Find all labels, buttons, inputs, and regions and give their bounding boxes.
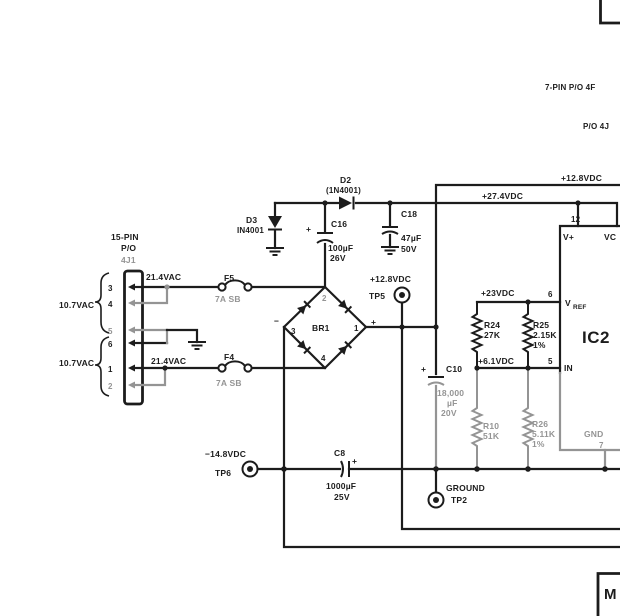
c8-name: C8: [334, 448, 345, 458]
winding-bottom-label: 10.7VAC: [59, 358, 94, 368]
d3-name: D3: [246, 215, 257, 225]
ic2-vplus: V+: [563, 232, 574, 242]
label-23vdc: +23VDC: [481, 288, 515, 298]
br1-name: BR1: [312, 323, 330, 333]
tp6-name: TP6: [215, 468, 231, 478]
r24-name: R24: [484, 320, 500, 330]
wire-pin2: [142, 368, 165, 385]
c8-voltage: 25V: [334, 492, 350, 502]
winding-brace-bottom: [95, 337, 109, 396]
c16-value: 100µF: [328, 243, 353, 253]
f5-rating: 7A SB: [215, 294, 241, 304]
c18-voltage: 50V: [401, 244, 417, 254]
tp6-voltage: −14.8VDC: [205, 449, 246, 459]
label-12v8-bus: +12.8VDC: [561, 173, 602, 183]
pin-label-5: 5: [108, 327, 113, 336]
c18-value: 47µF: [401, 233, 421, 243]
c18-name: C18: [401, 209, 417, 219]
ic2-pin7: 7: [599, 441, 604, 450]
d2-part: (1N4001): [326, 186, 361, 195]
wire-pin4: [142, 287, 167, 303]
r25-name: R25: [533, 320, 549, 330]
tp5-dot: [399, 292, 405, 298]
c10-plus: +: [421, 364, 426, 374]
fuse-f4-icon: [218, 361, 251, 371]
f5-name: F5: [224, 273, 234, 283]
vac-top-label: 21.4VAC: [146, 272, 181, 282]
tp6-dot: [247, 466, 253, 472]
label-27v4-bus: +27.4VDC: [482, 191, 523, 201]
br1-pin4: 4: [321, 354, 326, 363]
label-6v1: +6.1VDC: [478, 356, 514, 366]
br1-pin3: 3: [291, 327, 296, 336]
f4-name: F4: [224, 352, 234, 362]
r10-value: 51K: [483, 431, 500, 441]
r25-value: 2.15K: [533, 330, 557, 340]
r24-value: 27K: [484, 330, 501, 340]
ic2-in: IN: [564, 363, 573, 373]
r10-name: R10: [483, 421, 499, 431]
c10-value: 18,000: [437, 388, 464, 398]
vac-bottom-label: 21.4VAC: [151, 356, 186, 366]
ic2-pin12: 12: [571, 215, 581, 224]
c10-name: C10: [446, 364, 462, 374]
pin-label-6: 6: [108, 340, 113, 349]
pin-label-4: 4: [108, 300, 113, 309]
c10-plate-bottom: [428, 383, 444, 386]
module-label: M: [604, 586, 617, 603]
junction-pin4: [164, 284, 169, 289]
tp5-name: TP5: [369, 291, 385, 301]
r26-tol: 1%: [532, 439, 545, 449]
ic2-vref-sub: REF: [573, 304, 587, 311]
ic2-pin6: 6: [548, 290, 553, 299]
c10-unit: µF: [447, 398, 458, 408]
d2-name: D2: [340, 175, 351, 185]
wire-to-ground: [167, 330, 197, 342]
br1-minus: −: [274, 316, 279, 326]
r25-tol: 1%: [533, 340, 546, 350]
br1-pin1: 1: [354, 324, 359, 333]
ic2-vcc: VC: [604, 232, 616, 242]
winding-brace-top: [95, 273, 109, 333]
connector-pin-arrows: [128, 284, 142, 389]
c16-plus: +: [306, 224, 311, 234]
c8-value: 1000µF: [326, 481, 356, 491]
winding-top-label: 10.7VAC: [59, 300, 94, 310]
c16-voltage: 26V: [330, 253, 346, 263]
r25-resistor: [524, 302, 533, 368]
c8-plate-left: [341, 461, 343, 477]
r10-resistor: [473, 368, 482, 469]
pin-label-1: 1: [108, 365, 113, 374]
br1-pin2: 2: [322, 294, 327, 303]
d2-diode-icon: [339, 197, 352, 210]
tp2-dot: [433, 497, 439, 503]
connector-title2: P/O: [121, 243, 136, 253]
tp2-ground-label: GROUND: [446, 483, 485, 493]
junction-pin2: [162, 365, 167, 370]
tp2-name: TP2: [451, 495, 467, 505]
d3-diode-icon: [268, 216, 282, 228]
r26-name: R26: [532, 419, 548, 429]
top-right-box-corner: [601, 0, 620, 23]
caption-7pin: 7-PIN P/O 4F: [545, 83, 595, 92]
pin-label-2: 2: [108, 382, 113, 391]
d3-part: IN4001: [237, 226, 264, 235]
tp5-voltage: +12.8VDC: [370, 274, 411, 284]
br1-plus: +: [371, 317, 376, 327]
pin-label-3: 3: [108, 284, 113, 293]
ic2-name: IC2: [582, 328, 610, 347]
c18-plate-bottom: [382, 232, 398, 235]
connector-title1: 15-PIN: [111, 232, 139, 242]
connector-title3: 4J1: [121, 255, 136, 265]
c8-plus: +: [352, 456, 357, 466]
caption-po4j: P/O 4J: [583, 122, 609, 131]
ic2-pin5: 5: [548, 357, 553, 366]
f4-rating: 7A SB: [216, 378, 242, 388]
ic2-gnd: GND: [584, 429, 604, 439]
schematic-page: 7-PIN P/O 4F P/O 4J +12.8VDC +27.4VDC D2…: [0, 0, 620, 616]
ic2-vref: V: [565, 298, 571, 308]
c10-voltage: 20V: [441, 408, 457, 418]
c16-name: C16: [331, 219, 347, 229]
r26-value: 5.11K: [532, 429, 556, 439]
power-supply-schematic: 7-PIN P/O 4F P/O 4J +12.8VDC +27.4VDC D2…: [0, 0, 620, 616]
